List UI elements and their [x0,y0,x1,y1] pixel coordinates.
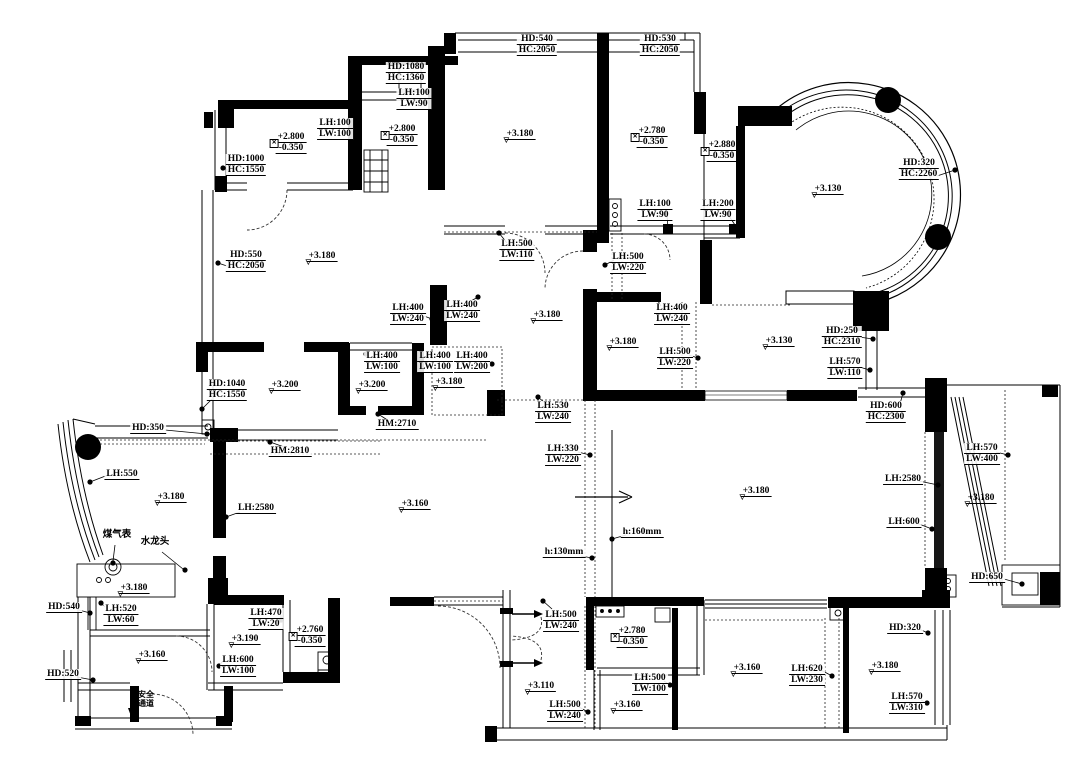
label-line: LW:90 [700,210,735,221]
label-line: LH:500 [632,673,668,684]
elevation-marker-icon: ▽ [812,192,817,199]
dimension-label: HD:550HC:2050 [226,250,266,272]
label-line: +3.160 [732,663,763,674]
dimension-label: LH:570LW:400 [964,443,1000,465]
label-line: LH:500 [547,700,583,711]
dimension-label: LH:570LW:110 [827,357,862,379]
label-line: LH:500 [543,610,579,621]
dimension-label: LH:530LW:240 [535,401,571,423]
box-cross-marker-icon: ✕ [289,632,298,641]
dimension-label: h:160mm [621,527,664,538]
label-line: -0.350 [707,151,738,162]
label-line: HD:320 [899,158,939,169]
label-line: +3.180 [505,129,536,140]
label-line: +3.160 [400,499,431,510]
label-line: +3.160 [612,700,643,711]
elevation-label: +2.780-0.350✕ [615,626,648,648]
label-line: LH:400 [654,303,690,314]
label-line: -0.350 [295,636,326,647]
label-line: 安全 [136,690,156,699]
label-line: HD:350 [130,423,166,434]
label-line: HM:2810 [269,446,312,457]
label-line: LH:620 [789,664,825,675]
dimension-label: HD:540HC:2050 [517,34,557,56]
label-line: +3.160 [137,650,168,661]
label-line: 煤气表 [101,530,134,540]
label-line: LH:100 [637,199,672,210]
elevation-label: +2.880-0.350✕ [705,140,738,162]
dimension-label: LH:500LW:240 [547,700,583,722]
label-line: LW:110 [827,368,862,379]
dimension-label: LH:400LW:200 [454,351,490,373]
label-line: LW:20 [248,619,283,630]
label-line: LW:220 [610,263,646,274]
label-line: HC:2050 [226,261,266,272]
label-line: LW:100 [632,684,668,695]
annotation-layer: HD:1080HC:1360LH:100LW:90HD:540HC:2050HD… [0,0,1065,772]
label-line: LW:200 [454,362,490,373]
text-label: 水龙头 [139,537,172,547]
label-line: +2.800 [276,132,307,143]
dimension-label: LH:520LW:60 [103,604,138,626]
dimension-label: LH:400LW:240 [654,303,690,325]
label-line: HC:1550 [226,165,266,176]
dimension-label: LH:500LW:110 [499,239,534,261]
label-line: +3.200 [357,380,388,391]
elevation-label: +3.180▽ [154,492,187,503]
dimension-label: HD:1040HC:1550 [207,379,247,401]
label-line: LW:230 [789,675,825,686]
label-line: HC:1550 [207,390,247,401]
label-line: +3.180 [119,583,150,594]
text-label: 安全通道 [136,690,156,708]
elevation-label: +3.180▽ [606,337,639,348]
dimension-label: HD:650 [969,572,1005,583]
dimension-label: HD:600HC:2300 [866,401,906,423]
dimension-label: LH:500LW:240 [543,610,579,632]
dimension-label: HD:540 [46,602,82,613]
label-line: +3.190 [230,634,261,645]
label-line: LH:570 [889,692,925,703]
label-line: h:130mm [543,547,586,558]
dimension-label: LH:200LW:90 [700,199,735,221]
elevation-label: +3.180▽ [432,377,465,388]
elevation-marker-icon: ▽ [229,642,234,649]
label-line: HD:650 [969,572,1005,583]
dimension-label: LH:330LW:220 [545,444,581,466]
label-line: HD:1040 [207,379,247,390]
box-cross-marker-icon: ✕ [631,133,640,142]
label-line: -0.350 [276,143,307,154]
label-line: HC:1360 [386,73,426,84]
label-line: HD:530 [640,34,680,45]
label-line: LW:240 [535,412,571,423]
elevation-label: +3.180▽ [305,251,338,262]
label-line: LH:100 [396,88,431,99]
elevation-label: +3.180▽ [964,493,997,504]
label-line: LH:400 [444,300,480,311]
label-line: +3.180 [608,337,639,348]
elevation-label: +2.760-0.350✕ [293,625,326,647]
label-line: HD:1000 [226,154,266,165]
label-line: HD:550 [226,250,266,261]
elevation-marker-icon: ▽ [399,507,404,514]
dimension-label: LH:100LW:90 [396,88,431,110]
label-line: LH:400 [454,351,490,362]
elevation-marker-icon: ▽ [504,137,509,144]
label-line: HD:540 [46,602,82,613]
label-line: h:160mm [621,527,664,538]
dimension-label: LH:550 [104,469,139,480]
label-line: LW:90 [637,210,672,221]
elevation-label: +2.780-0.350✕ [635,126,668,148]
label-line: +3.130 [813,184,844,195]
label-line: LW:100 [317,129,353,140]
elevation-marker-icon: ▽ [269,388,274,395]
label-line: LH:200 [700,199,735,210]
label-line: LH:600 [886,517,921,528]
elevation-marker-icon: ▽ [611,708,616,715]
elevation-marker-icon: ▽ [356,388,361,395]
label-line: +3.180 [870,661,901,672]
label-line: +3.180 [434,377,465,388]
dimension-label: LH:600 [886,517,921,528]
label-line: +2.760 [295,625,326,636]
label-line: HD:540 [517,34,557,45]
dimension-label: LH:470LW:20 [248,608,283,630]
dimension-label: LH:500LW:220 [657,347,693,369]
text-label: 煤气表 [101,530,134,540]
label-line: LW:240 [444,311,480,322]
label-line: LW:100 [417,362,453,373]
dimension-label: HD:520 [45,669,81,680]
dimension-label: HD:250HC:2310 [822,326,862,348]
elevation-label: +3.160▽ [730,663,763,674]
label-line: LH:550 [104,469,139,480]
elevation-marker-icon: ▽ [965,501,970,508]
box-cross-marker-icon: ✕ [611,633,620,642]
elevation-marker-icon: ▽ [136,658,141,665]
label-line: LH:500 [499,239,534,250]
label-line: LW:110 [499,250,534,261]
label-line: +3.180 [156,492,187,503]
label-line: LW:400 [964,454,1000,465]
dimension-label: LH:2580 [883,474,923,485]
label-line: HC:2050 [517,45,557,56]
label-line: LH:400 [390,303,426,314]
dimension-label: LH:500LW:100 [632,673,668,695]
elevation-label: +3.160▽ [398,499,431,510]
label-line: LH:530 [535,401,571,412]
dimension-label: LH:600LW:100 [220,655,256,677]
elevation-label: +3.190▽ [228,634,261,645]
box-cross-marker-icon: ✕ [701,147,710,156]
elevation-marker-icon: ▽ [869,669,874,676]
elevation-marker-icon: ▽ [531,318,536,325]
dimension-label: LH:400LW:100 [364,351,400,373]
label-line: HD:1080 [386,62,426,73]
label-line: +3.180 [966,493,997,504]
label-line: LW:90 [396,99,431,110]
label-line: LH:520 [103,604,138,615]
label-line: HC:2300 [866,412,906,423]
elevation-marker-icon: ▽ [731,671,736,678]
label-line: LW:240 [547,711,583,722]
dimension-label: LH:500LW:220 [610,252,646,274]
label-line: HM:2710 [376,419,419,430]
elevation-label: +3.180▽ [117,583,150,594]
label-line: +2.780 [617,626,648,637]
elevation-marker-icon: ▽ [155,500,160,507]
label-line: LH:570 [827,357,862,368]
elevation-label: +3.180▽ [503,129,536,140]
elevation-marker-icon: ▽ [525,689,530,696]
elevation-marker-icon: ▽ [607,345,612,352]
label-line: LH:570 [964,443,1000,454]
label-line: LH:2580 [883,474,923,485]
label-line: LH:400 [417,351,453,362]
dimension-label: LH:570LW:310 [889,692,925,714]
dimension-label: HD:320HC:2260 [899,158,939,180]
elevation-label: +3.180▽ [530,310,563,321]
elevation-label: +3.110▽ [524,681,556,692]
label-line: -0.350 [637,137,668,148]
dimension-label: h:130mm [543,547,586,558]
elevation-label: +2.800-0.350✕ [385,124,418,146]
label-line: 水龙头 [139,537,172,547]
elevation-marker-icon: ▽ [306,259,311,266]
label-line: HD:600 [866,401,906,412]
label-line: LW:220 [657,358,693,369]
label-line: LW:240 [543,621,579,632]
elevation-label: +3.200▽ [268,380,301,391]
dimension-label: LH:400LW:240 [444,300,480,322]
label-line: LH:2580 [236,503,276,514]
label-line: HC:2310 [822,337,862,348]
dimension-label: HM:2810 [269,446,312,457]
label-line: +3.180 [307,251,338,262]
elevation-label: +3.160▽ [135,650,168,661]
label-line: +3.200 [270,380,301,391]
dimension-label: LH:400LW:100 [417,351,453,373]
elevation-marker-icon: ▽ [118,591,123,598]
label-line: LH:100 [317,118,353,129]
label-line: HD:520 [45,669,81,680]
elevation-label: +3.180▽ [739,486,772,497]
label-line: -0.350 [617,637,648,648]
label-line: +3.180 [741,486,772,497]
label-line: +2.780 [637,126,668,137]
elevation-marker-icon: ▽ [740,494,745,501]
dimension-label: LH:620LW:230 [789,664,825,686]
dimension-label: HD:530HC:2050 [640,34,680,56]
label-line: LH:600 [220,655,256,666]
elevation-label: +2.800-0.350✕ [274,132,307,154]
label-line: LW:100 [364,362,400,373]
dimension-label: LH:100LW:90 [637,199,672,221]
label-line: LH:500 [610,252,646,263]
elevation-marker-icon: ▽ [433,385,438,392]
label-line: +3.130 [764,336,795,347]
dimension-label: HD:1080HC:1360 [386,62,426,84]
dimension-label: HM:2710 [376,419,419,430]
dimension-label: HD:320 [887,623,923,634]
dimension-label: LH:100LW:100 [317,118,353,140]
label-line: LH:400 [364,351,400,362]
label-line: +2.800 [387,124,418,135]
elevation-label: +3.160▽ [610,700,643,711]
label-line: LW:100 [220,666,256,677]
elevation-label: +3.200▽ [355,380,388,391]
dimension-label: HD:1000HC:1550 [226,154,266,176]
label-line: -0.350 [387,135,418,146]
label-line: LW:240 [654,314,690,325]
label-line: LH:330 [545,444,581,455]
dimension-label: LH:2580 [236,503,276,514]
elevation-label: +3.130▽ [762,336,795,347]
dimension-label: HD:350 [130,423,166,434]
dimension-label: LH:400LW:240 [390,303,426,325]
label-line: LW:220 [545,455,581,466]
floorplan-canvas: HD:1080HC:1360LH:100LW:90HD:540HC:2050HD… [0,0,1065,772]
label-line: LH:500 [657,347,693,358]
box-cross-marker-icon: ✕ [381,131,390,140]
label-line: +3.180 [532,310,563,321]
label-line: LH:470 [248,608,283,619]
label-line: HC:2050 [640,45,680,56]
label-line: LW:60 [103,615,138,626]
label-line: HD:250 [822,326,862,337]
label-line: LW:310 [889,703,925,714]
elevation-label: +3.180▽ [868,661,901,672]
label-line: HC:2260 [899,169,939,180]
label-line: LW:240 [390,314,426,325]
box-cross-marker-icon: ✕ [270,139,279,148]
label-line: 通道 [136,699,156,708]
label-line: +2.880 [707,140,738,151]
label-line: +3.110 [526,681,556,692]
elevation-marker-icon: ▽ [763,344,768,351]
elevation-label: +3.130▽ [811,184,844,195]
label-line: HD:320 [887,623,923,634]
